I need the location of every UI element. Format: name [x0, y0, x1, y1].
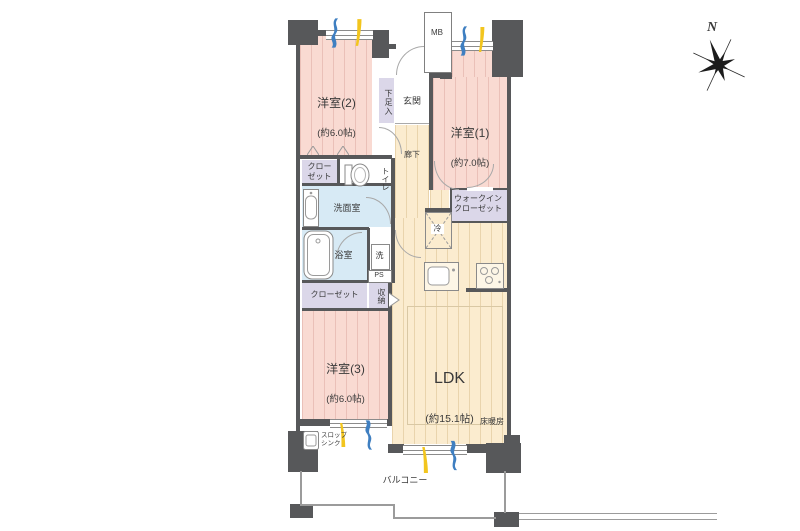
label-washer: 洗 [371, 251, 388, 261]
balcony-railing [393, 504, 395, 518]
stove-icon [476, 263, 504, 289]
wall-segment [302, 308, 392, 311]
neighbor-boundary-line [519, 519, 717, 520]
balcony-railing [300, 504, 394, 506]
floor-plan: 洋室(2) (約6.0帖) 洋室(1) (約7.0帖) 洋室(3) (約6.0帖… [0, 0, 800, 531]
sliding-door-marker-icon [389, 293, 400, 308]
wall-segment [466, 444, 488, 453]
wall-segment [300, 30, 328, 36]
curtain-yellow-icon [354, 19, 364, 46]
entrance-step-line [395, 123, 429, 124]
wall-segment [388, 444, 404, 453]
room-size: (約6.0帖) [317, 128, 356, 139]
label-walk-in-closet: ウォークイン クローゼット [451, 194, 505, 213]
curtain-blue-icon [447, 440, 458, 471]
balcony-railing [504, 471, 506, 513]
room-name: 洋室(3) [326, 362, 365, 376]
room-name: 洋室(1) [451, 126, 490, 140]
label-storage: 収納 [374, 286, 386, 306]
balcony-railing [393, 517, 496, 519]
curtain-blue-icon [328, 18, 339, 48]
slop-sink-icon [303, 431, 319, 450]
hallway-floor [395, 125, 429, 218]
label-shoe-cabinet: 下足入 [380, 81, 393, 123]
label-washroom: 洗面室 [302, 203, 392, 214]
room-label-western1: 洋室(1) (約7.0帖) [433, 112, 507, 170]
neighbor-boundary-line [519, 513, 717, 514]
room-name: LDK [434, 370, 465, 387]
wall-segment [391, 158, 395, 283]
label-refrigerator: 冷 [431, 224, 444, 234]
curtain-blue-icon [457, 26, 468, 56]
toilet-icon [344, 161, 370, 189]
room-size: (約7.0帖) [451, 158, 490, 169]
label-balcony: バルコニー [370, 475, 440, 486]
label-entrance: 玄関 [395, 96, 429, 107]
balcony-corner-block [290, 504, 313, 518]
label-meter-box: MB [424, 28, 450, 38]
label-slop-sink: スロップ シンク [321, 432, 351, 448]
balcony-corner-block [494, 512, 519, 527]
room-label-ldk: LDK (約15.1帖) [392, 350, 507, 427]
balcony-railing [300, 471, 302, 505]
curtain-yellow-icon [420, 447, 431, 473]
curtain-blue-icon [362, 420, 373, 450]
label-closet-lower: クローゼット [302, 290, 367, 300]
wall-segment [504, 435, 520, 444]
curtain-yellow-icon [477, 27, 487, 52]
kitchen-sink-icon [424, 262, 459, 291]
label-hallway: 廊下 [394, 150, 430, 160]
label-closet-upper: クロー ゼット [302, 162, 337, 181]
room-label-western2: 洋室(2) (約6.0帖) [300, 82, 373, 140]
pillar [492, 20, 523, 77]
wall-segment [337, 158, 340, 186]
wall-segment [372, 30, 389, 58]
wall-segment [388, 44, 396, 49]
wall-segment [296, 419, 331, 426]
room-label-western3: 洋室(3) (約6.0帖) [302, 348, 389, 406]
wall-segment [507, 75, 511, 447]
label-toilet: トイレ [377, 160, 390, 198]
closet-door-chevron-icon [307, 146, 319, 155]
compass-icon [688, 34, 750, 96]
room-size: (約6.0帖) [326, 394, 365, 405]
room-name: 洋室(2) [317, 96, 356, 110]
pillar [486, 443, 521, 473]
wall-segment [300, 155, 392, 159]
label-bathroom: 浴室 [320, 250, 367, 261]
label-pipe-space: PS [368, 272, 390, 280]
label-floor-heating: 床暖房 [466, 417, 504, 427]
closet-door-chevron-icon [337, 146, 349, 155]
meter-box [424, 12, 452, 73]
